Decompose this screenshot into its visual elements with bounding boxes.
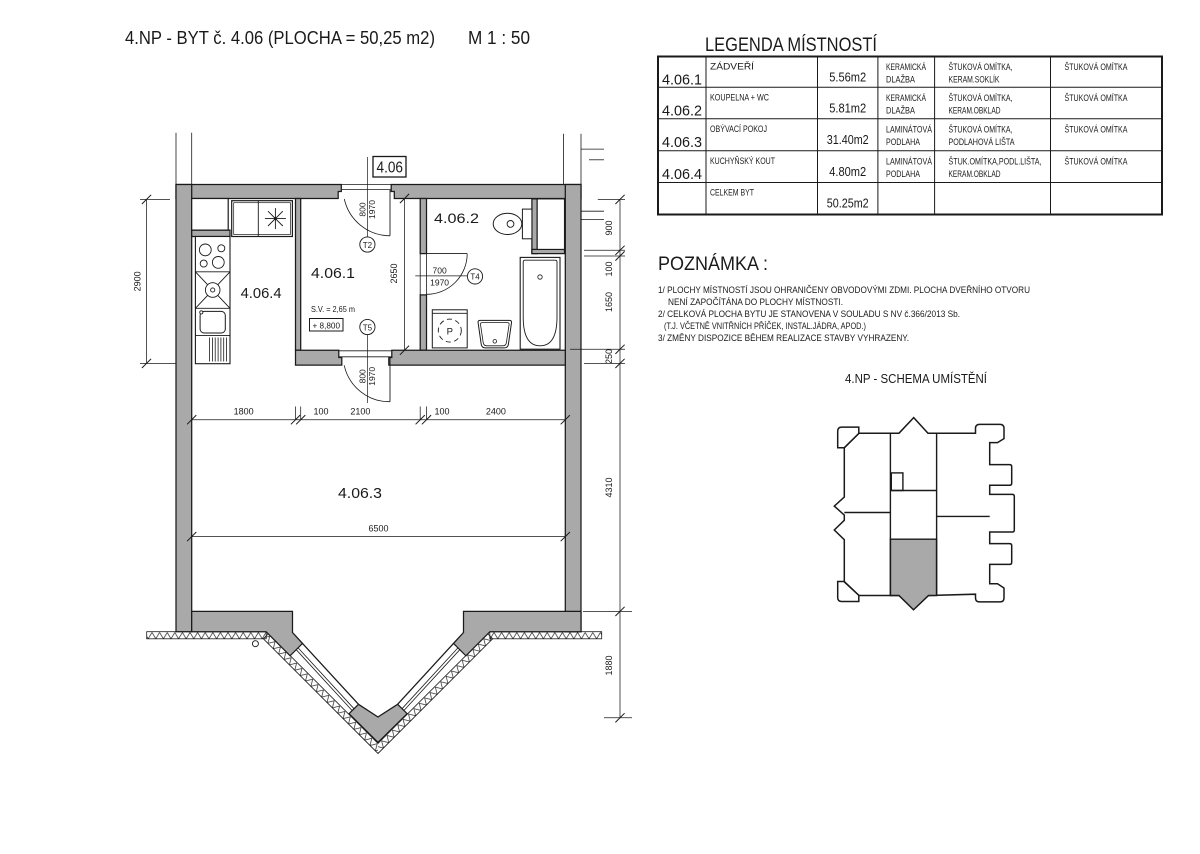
svg-text:2650: 2650: [389, 263, 399, 283]
svg-text:KERAM.OBKLAD: KERAM.OBKLAD: [949, 169, 1001, 180]
svg-text:LAMINÁTOVÁ: LAMINÁTOVÁ: [886, 156, 932, 167]
svg-text:1800: 1800: [234, 407, 254, 417]
svg-text:100: 100: [435, 407, 450, 417]
svg-text:1970: 1970: [367, 367, 377, 386]
svg-text:4.06.2: 4.06.2: [662, 102, 702, 119]
svg-text:4.06.4: 4.06.4: [241, 286, 282, 302]
svg-text:M 1 : 50: M 1 : 50: [468, 27, 530, 48]
svg-text:ZÁDVEŘÍ: ZÁDVEŘÍ: [710, 62, 754, 73]
svg-text:ŠTUKOVÁ OMÍTKA: ŠTUKOVÁ OMÍTKA: [1065, 156, 1128, 167]
svg-text:ŠTUKOVÁ OMÍTKA: ŠTUKOVÁ OMÍTKA: [1065, 124, 1128, 135]
svg-text:ŠTUK.OMÍTKA,PODL.LIŠTA,: ŠTUK.OMÍTKA,PODL.LIŠTA,: [949, 156, 1042, 167]
svg-text:100: 100: [604, 261, 614, 276]
svg-text:4.NP - SCHEMA UMÍSTĚNÍ: 4.NP - SCHEMA UMÍSTĚNÍ: [845, 371, 987, 386]
svg-text:OBÝVACÍ POKOJ: OBÝVACÍ POKOJ: [710, 124, 767, 135]
svg-text:4.06.2: 4.06.2: [434, 211, 479, 226]
svg-text:POZNÁMKA :: POZNÁMKA :: [658, 254, 768, 275]
svg-text:5.56m2: 5.56m2: [829, 70, 866, 85]
svg-text:4.06.1: 4.06.1: [311, 266, 355, 282]
svg-text:1880: 1880: [604, 655, 614, 675]
svg-text:4.80m2: 4.80m2: [829, 164, 866, 179]
svg-text:KOUPELNA + WC: KOUPELNA + WC: [710, 92, 769, 103]
svg-text:DLAŽBA: DLAŽBA: [886, 105, 916, 116]
svg-text:T4: T4: [470, 273, 480, 282]
svg-text:2/ CELKOVÁ PLOCHA BYTU JE STAN: 2/ CELKOVÁ PLOCHA BYTU JE STANOVENA V SO…: [658, 309, 960, 319]
svg-text:4.06.3: 4.06.3: [338, 486, 382, 502]
svg-text:5.81m2: 5.81m2: [829, 100, 866, 115]
svg-text:DLAŽBA: DLAŽBA: [886, 75, 916, 86]
svg-text:100: 100: [314, 407, 329, 417]
svg-text:PODLAHA: PODLAHA: [886, 137, 920, 148]
svg-text:ŠTUKOVÁ OMÍTKA,: ŠTUKOVÁ OMÍTKA,: [949, 93, 1013, 104]
svg-text:4.NP - BYT č. 4.06 (PLOCHA = 5: 4.NP - BYT č. 4.06 (PLOCHA = 50,25 m2): [125, 27, 435, 48]
svg-text:KERAM.OBKLAD: KERAM.OBKLAD: [949, 105, 1001, 116]
svg-text:PODLAHOVÁ LIŠTA: PODLAHOVÁ LIŠTA: [949, 137, 1015, 148]
svg-text:3/ ZMĚNY DISPOZICE BĚHEM REALI: 3/ ZMĚNY DISPOZICE BĚHEM REALIZACE STAVB…: [658, 333, 909, 343]
svg-text:6500: 6500: [368, 524, 388, 534]
svg-text:1650: 1650: [604, 292, 614, 312]
svg-text:250: 250: [604, 349, 614, 364]
svg-text:4.06.4: 4.06.4: [662, 166, 702, 183]
svg-text:KERAMICKÁ: KERAMICKÁ: [886, 93, 926, 104]
svg-text:4310: 4310: [604, 477, 614, 497]
svg-text:LAMINÁTOVÁ: LAMINÁTOVÁ: [886, 124, 932, 135]
svg-text:PODLAHA: PODLAHA: [886, 169, 920, 180]
svg-text:2400: 2400: [486, 407, 506, 417]
svg-text:2900: 2900: [133, 271, 143, 291]
svg-text:ŠTUKOVÁ OMÍTKA: ŠTUKOVÁ OMÍTKA: [1065, 62, 1128, 73]
svg-text:NENÍ ZAPOČÍTÁNA DO PLOCHY MÍST: NENÍ ZAPOČÍTÁNA DO PLOCHY MÍSTNOSTI.: [668, 297, 843, 307]
svg-text:1970: 1970: [367, 200, 377, 219]
svg-text:S.V. = 2,65 m: S.V. = 2,65 m: [311, 304, 355, 314]
svg-text:700: 700: [433, 266, 447, 276]
svg-text:T2: T2: [363, 241, 373, 250]
svg-text:2100: 2100: [350, 407, 370, 417]
svg-text:ŠTUKOVÁ OMÍTKA,: ŠTUKOVÁ OMÍTKA,: [949, 124, 1013, 135]
svg-text:KERAM.SOKLÍK: KERAM.SOKLÍK: [949, 75, 1000, 86]
svg-text:T5: T5: [363, 323, 373, 332]
svg-text:4.06: 4.06: [377, 160, 404, 177]
svg-text:LEGENDA MÍSTNOSTÍ: LEGENDA MÍSTNOSTÍ: [705, 35, 878, 56]
svg-text:CELKEM BYT: CELKEM BYT: [710, 188, 754, 199]
svg-text:31.40m2: 31.40m2: [827, 132, 869, 147]
svg-text:ŠTUKOVÁ OMÍTKA,: ŠTUKOVÁ OMÍTKA,: [949, 62, 1013, 73]
svg-text:50.25m2: 50.25m2: [827, 196, 869, 211]
svg-text:1/ PLOCHY MÍSTNOSTÍ JSOU OHRAN: 1/ PLOCHY MÍSTNOSTÍ JSOU OHRANIČENY OBVO…: [658, 285, 1030, 295]
svg-text:KERAMICKÁ: KERAMICKÁ: [886, 62, 926, 73]
svg-text:+ 8,800: + 8,800: [313, 320, 341, 330]
svg-text:4.06.1: 4.06.1: [662, 72, 702, 89]
svg-text:800: 800: [357, 202, 367, 216]
svg-text:(T.J. VČETNĚ VNITŘNÍCH PŘÍČEK,: (T.J. VČETNĚ VNITŘNÍCH PŘÍČEK, INSTAL.JÁ…: [664, 321, 866, 331]
svg-text:1970: 1970: [430, 278, 449, 288]
svg-text:800: 800: [357, 369, 367, 383]
svg-text:KUCHYŇSKÝ KOUT: KUCHYŇSKÝ KOUT: [710, 156, 775, 167]
svg-text:4.06.3: 4.06.3: [662, 134, 702, 151]
svg-text:P: P: [447, 327, 453, 338]
svg-text:900: 900: [604, 220, 614, 235]
svg-text:ŠTUKOVÁ OMÍTKA: ŠTUKOVÁ OMÍTKA: [1065, 93, 1128, 104]
